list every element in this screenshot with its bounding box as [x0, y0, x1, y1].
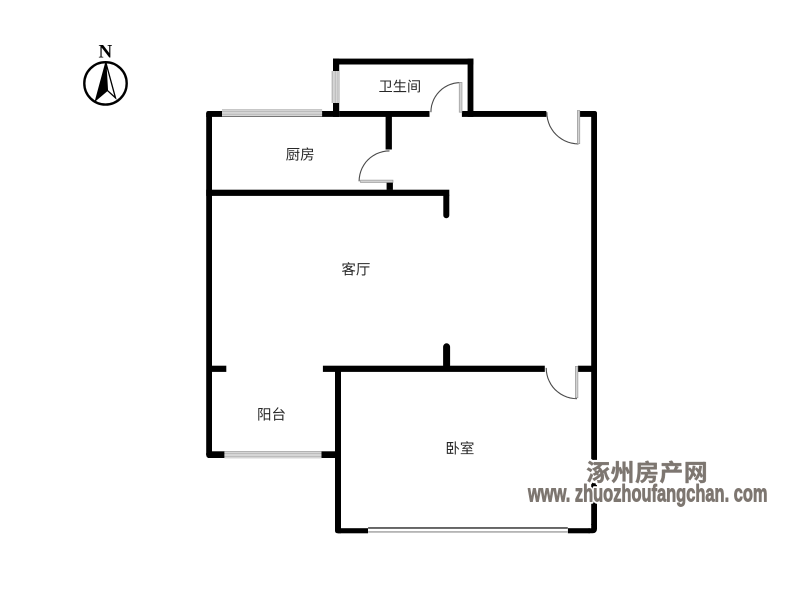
svg-text:N: N	[99, 42, 113, 63]
svg-text:www. zhuozhoufangchan. com: www. zhuozhoufangchan. com	[527, 480, 767, 507]
